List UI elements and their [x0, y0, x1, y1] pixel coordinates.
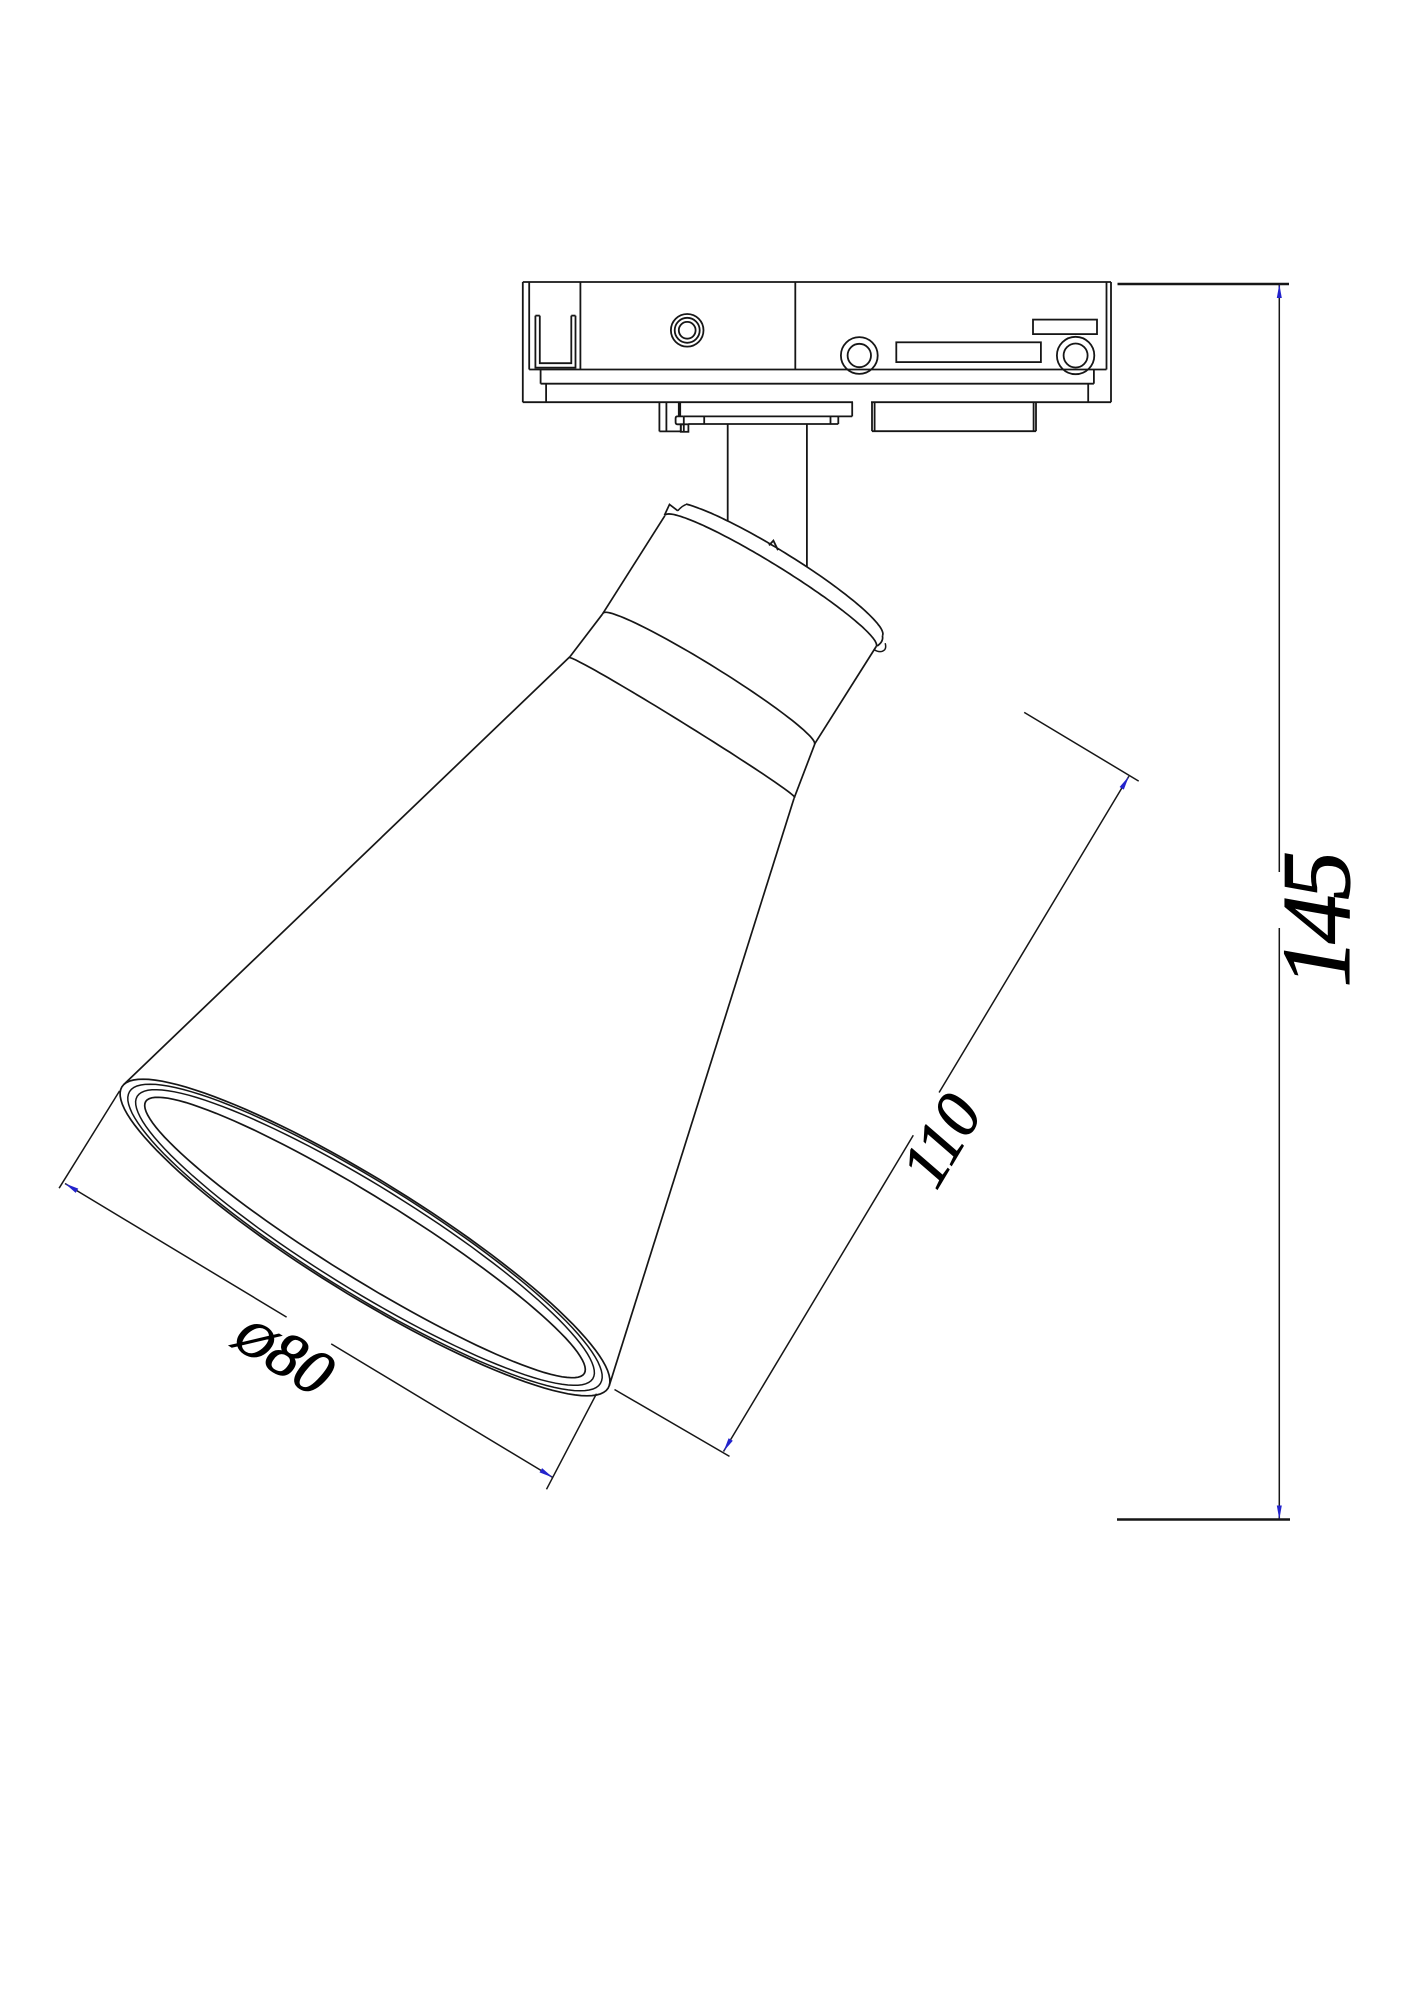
svg-text:Ø80: Ø80	[222, 1296, 346, 1410]
svg-text:110: 110	[887, 1082, 996, 1199]
svg-text:145: 145	[1263, 853, 1371, 988]
